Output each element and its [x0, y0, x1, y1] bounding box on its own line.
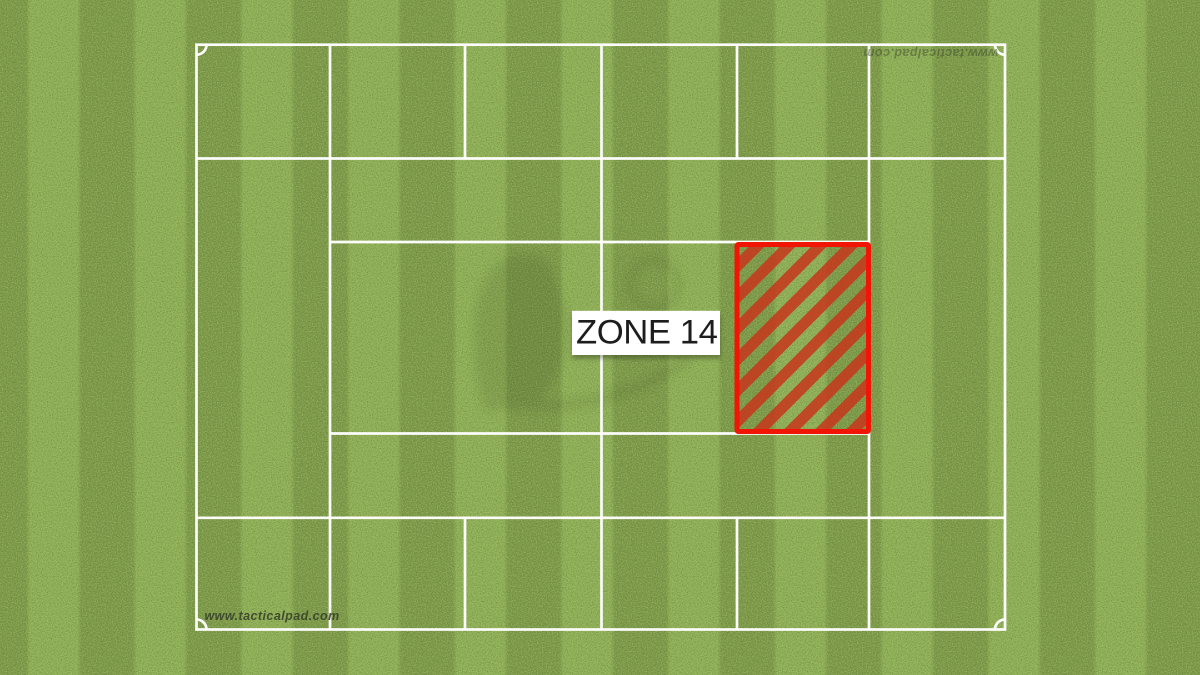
svg-text:ZONE 14: ZONE 14 — [576, 313, 718, 351]
svg-text:www.tacticalpad.com: www.tacticalpad.com — [863, 46, 998, 60]
svg-text:www.tacticalpad.com: www.tacticalpad.com — [205, 609, 340, 623]
